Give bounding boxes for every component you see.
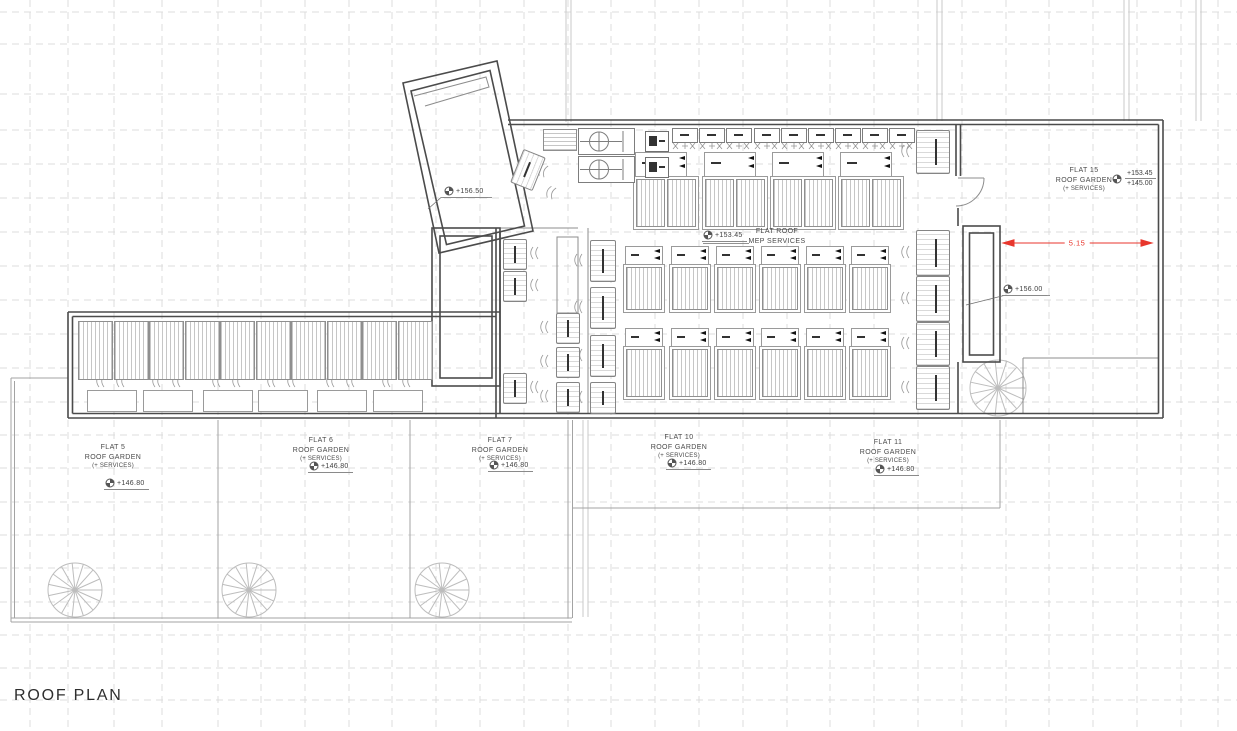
airflow-arrow-icon — [816, 164, 822, 168]
airflow-arrow-icon — [880, 256, 886, 260]
airflow-arrow-icon — [748, 156, 754, 160]
condenser-unit — [203, 390, 253, 412]
airflow-arrow-icon — [790, 256, 796, 260]
condenser-unit — [503, 239, 527, 270]
flat11-level-marker: +146.80 — [874, 464, 919, 476]
mep-level-marker: +153.45 — [702, 230, 747, 242]
pump-unit — [645, 131, 669, 152]
airflow-arrow-icon — [790, 331, 796, 335]
level-marker-icon — [489, 460, 499, 470]
equipment-tag-mark — [659, 140, 665, 142]
ac-coil — [773, 179, 802, 227]
ac-coil — [736, 179, 765, 227]
equipment-tag-mark — [762, 134, 771, 136]
equipment-tag-mark — [680, 134, 689, 136]
roof-panel — [256, 321, 291, 380]
condenser-unit — [373, 390, 423, 412]
equipment-tag-mark — [677, 254, 685, 256]
airflow-arrow-icon — [654, 338, 660, 342]
ac-coil — [667, 179, 696, 227]
equipment-tag-mark — [935, 375, 937, 401]
condenser-unit — [317, 390, 367, 412]
condenser-unit — [916, 366, 950, 410]
airflow-arrow-icon — [679, 156, 685, 160]
ac-coil — [717, 267, 753, 310]
condenser-unit — [556, 347, 580, 378]
condenser-unit — [916, 230, 950, 276]
flat5-name: FLAT 5 — [85, 443, 142, 453]
equipment-tag-mark — [843, 134, 852, 136]
airflow-arrow-icon — [654, 256, 660, 260]
airflow-arrow-icon — [880, 338, 886, 342]
small-condenser — [835, 128, 861, 143]
ac-coil — [762, 349, 798, 397]
ac-coil — [852, 349, 888, 397]
airflow-arrow-icon — [880, 249, 886, 253]
equipment-tag-mark — [935, 285, 937, 313]
equipment-tag-mark — [514, 278, 516, 295]
airflow-arrow-icon — [745, 249, 751, 253]
condenser-unit — [590, 335, 616, 377]
roof-fan-unit — [578, 128, 635, 155]
level-marker-icon — [1112, 174, 1122, 184]
roof-panel — [362, 321, 397, 380]
roof-plan-drawing: FLAT 5 ROOF GARDEN (+ SERVICES) +146.80 … — [0, 0, 1237, 731]
small-condenser — [672, 128, 698, 143]
condenser-unit — [258, 390, 308, 412]
airflow-arrow-icon — [654, 249, 660, 253]
mep-equipment-layer — [0, 0, 1237, 731]
condenser-unit — [590, 287, 616, 329]
airflow-arrow-icon — [835, 338, 841, 342]
equipment-tag-mark — [602, 296, 604, 320]
condenser-unit — [543, 129, 577, 151]
airflow-arrow-icon — [654, 331, 660, 335]
equipment-tag-mark — [812, 254, 820, 256]
airflow-arrow-icon — [745, 331, 751, 335]
airflow-arrow-icon — [700, 249, 706, 253]
ac-coil — [841, 179, 870, 227]
small-condenser — [726, 128, 752, 143]
equipment-tag-mark — [602, 249, 604, 273]
ac-coil — [717, 349, 753, 397]
shaft-level-marker: +156.00 — [1002, 284, 1047, 296]
flat7-level-marker: +146.80 — [488, 460, 533, 472]
condenser-unit — [503, 271, 527, 302]
condenser-unit — [916, 322, 950, 366]
equipment-tag-mark — [631, 254, 639, 256]
equipment-tag-mark — [816, 134, 825, 136]
equipment-tag-mark — [767, 254, 775, 256]
small-condenser — [699, 128, 725, 143]
ac-coil — [762, 267, 798, 310]
equipment-tag-mark — [631, 336, 639, 338]
dimension-value: 5.15 — [1065, 239, 1090, 248]
airflow-arrow-icon — [790, 338, 796, 342]
fan-icon — [579, 129, 634, 154]
level-marker-icon — [703, 230, 713, 240]
airflow-arrow-icon — [835, 256, 841, 260]
equipment-tag-mark — [523, 162, 531, 178]
roof-panel — [398, 321, 433, 380]
condenser-unit — [510, 149, 546, 191]
equipment-tag-mark — [935, 239, 937, 267]
small-condenser — [862, 128, 888, 143]
ac-coil — [705, 179, 734, 227]
airflow-arrow-icon — [790, 249, 796, 253]
condenser-unit — [143, 390, 193, 412]
equipment-tag-mark — [734, 134, 743, 136]
airflow-arrow-icon — [700, 331, 706, 335]
airflow-arrow-icon — [745, 256, 751, 260]
roof-panel — [114, 321, 149, 380]
small-condenser — [808, 128, 834, 143]
equipment-tag-mark — [711, 162, 721, 164]
equipment-tag-mark — [779, 162, 789, 164]
level-marker-icon — [444, 186, 454, 196]
equipment-tag-mark — [602, 391, 604, 405]
condenser-unit — [590, 382, 616, 414]
equipment-tag-mark — [659, 166, 665, 168]
condenser-unit — [87, 390, 137, 412]
equipment-tag-mark — [722, 254, 730, 256]
equipment-tag-mark — [767, 336, 775, 338]
flat11-label: FLAT 11 ROOF GARDEN (+ SERVICES) — [860, 438, 917, 467]
flat5-label: FLAT 5 ROOF GARDEN (+ SERVICES) — [85, 443, 142, 472]
condenser-unit — [556, 382, 580, 413]
ac-coil — [626, 349, 662, 397]
ac-coil — [804, 179, 833, 227]
level-marker-icon — [309, 461, 319, 471]
equipment-tag-mark — [722, 336, 730, 338]
flat15-label: FLAT 15 ROOF GARDEN (+ SERVICES) — [1056, 166, 1113, 195]
small-condenser — [889, 128, 915, 143]
mep-area-label: FLAT ROOF MEP SERVICES — [748, 227, 805, 246]
airflow-arrow-icon — [884, 164, 890, 168]
equipment-tag-mark — [567, 320, 569, 337]
level-marker-icon — [875, 464, 885, 474]
level-marker-icon — [1003, 284, 1013, 294]
airflow-arrow-icon — [745, 338, 751, 342]
condenser-unit — [916, 130, 950, 174]
ac-coil — [672, 349, 708, 397]
equipment-tag-mark — [857, 336, 865, 338]
small-condenser — [754, 128, 780, 143]
airflow-arrow-icon — [816, 156, 822, 160]
level-marker-icon — [667, 458, 677, 468]
drawing-title: ROOF PLAN — [14, 687, 123, 705]
roof-panel — [78, 321, 113, 380]
pump-unit — [645, 157, 669, 178]
flat5-level-marker: +146.80 — [104, 478, 149, 490]
equipment-tag-mark — [870, 134, 879, 136]
roof-panel — [185, 321, 220, 380]
airflow-arrow-icon — [880, 331, 886, 335]
equipment-tag-mark — [857, 254, 865, 256]
equipment-tag-mark — [514, 380, 516, 397]
flat6-level-marker: +146.80 — [308, 461, 353, 473]
equipment-tag-mark — [567, 389, 569, 406]
equipment-tag-mark — [567, 354, 569, 371]
ac-coil — [672, 267, 708, 310]
airflow-arrow-icon — [835, 249, 841, 253]
ac-coil — [807, 267, 843, 310]
airflow-arrow-icon — [700, 256, 706, 260]
roof-panel — [291, 321, 326, 380]
equipment-tag-mark — [707, 134, 716, 136]
equipment-tag-mark — [935, 139, 937, 165]
equipment-tag-mark — [677, 336, 685, 338]
equipment-tag-mark — [602, 344, 604, 368]
airflow-arrow-icon — [748, 164, 754, 168]
equipment-tag-mark — [847, 162, 857, 164]
equipment-tag-mark — [935, 331, 937, 357]
roof-panel — [220, 321, 255, 380]
equipment-tag-mark — [897, 134, 906, 136]
airflow-arrow-icon — [679, 164, 685, 168]
airflow-arrow-icon — [700, 338, 706, 342]
airflow-arrow-icon — [884, 156, 890, 160]
airflow-arrow-icon — [835, 331, 841, 335]
condenser-unit — [916, 276, 950, 322]
condenser-unit — [556, 313, 580, 344]
condenser-unit — [503, 373, 527, 404]
ac-coil — [872, 179, 901, 227]
flat15-level-marker: +153.45 +145.00 — [1112, 170, 1156, 187]
equipment-tag-mark — [649, 162, 657, 172]
equipment-tag-mark — [514, 246, 516, 263]
flat10-level-marker: +146.80 — [666, 458, 711, 470]
fan-icon — [579, 157, 634, 182]
small-condenser — [781, 128, 807, 143]
roof-fan-unit — [578, 156, 635, 183]
equipment-tag-mark — [649, 136, 657, 146]
level-marker-icon — [105, 478, 115, 488]
ac-coil — [636, 179, 665, 227]
ac-coil — [626, 267, 662, 310]
equipment-tag-mark — [812, 336, 820, 338]
ac-coil — [807, 349, 843, 397]
roof-panel — [149, 321, 184, 380]
condenser-unit — [590, 240, 616, 282]
equipment-tag-mark — [789, 134, 798, 136]
ac-coil — [852, 267, 888, 310]
roof-panel — [327, 321, 362, 380]
tower-level-marker: +156.50 — [443, 186, 488, 198]
